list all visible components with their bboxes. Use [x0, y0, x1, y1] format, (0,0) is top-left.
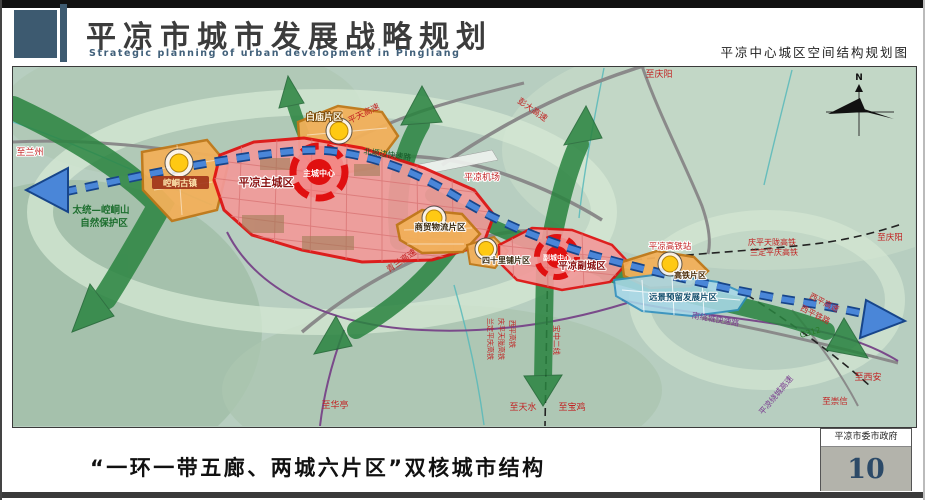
compass-n-label: N [855, 73, 863, 83]
map-frame: N 至兰州 平天高速 彭大高速 至庆阳 北塬边快速路 平凉机场 青兰高速 平凉高… [12, 66, 917, 428]
map-sheet-title: 平凉中心城区空间结构规划图 [720, 42, 909, 61]
label-hsr-district: 高铁片区 [674, 270, 706, 280]
label-to-chongxin: 至崇信 [822, 396, 848, 407]
label-sub-core: 副城中心 [543, 253, 571, 262]
header-accent-bar [60, 4, 67, 62]
page-number: 10 [821, 447, 911, 491]
label-to-lanzhou: 至兰州 [16, 146, 43, 158]
label-qpt-hsr-vertical: 庆平天陇高铁 [497, 318, 506, 360]
label-ldpq-hsr: 兰定平庆高铁 [750, 247, 798, 257]
page-bottom-rule [2, 492, 925, 498]
label-main-core: 主城中心 [303, 168, 335, 178]
header-logo-block [14, 10, 57, 58]
label-sishilipu: 四十里铺片区 [482, 255, 530, 265]
label-baimiao: 白庙片区 [306, 111, 342, 123]
structure-caption: “一环一带五廊、两城六片区”双核城市结构 [90, 452, 546, 482]
label-to-tianshui: 至天水 [509, 401, 536, 413]
label-nature-reserve-line1: 太统—崆峒山 [72, 204, 129, 216]
label-main-city: 平凉主城区 [239, 175, 294, 189]
label-to-huating: 至华亭 [321, 399, 348, 411]
node-kongtong [165, 149, 193, 177]
planning-poster-page: 平凉市城市发展战略规划 Strategic planning of urban … [0, 0, 925, 500]
label-to-baoji: 至宝鸡 [558, 401, 585, 413]
label-to-qingyang-east: 至庆阳 [877, 232, 903, 243]
page-number-box: 平凉市委市政府 10 [820, 428, 912, 491]
page-subtitle-en: Strategic planning of urban development … [89, 48, 461, 59]
label-qpt-hsr: 庆平天陇高铁 [748, 237, 796, 247]
label-hsr-station: 平凉高铁站 [649, 241, 692, 252]
label-kongtong-town-badge: 崆峒古镇 [152, 176, 209, 189]
label-baozhong-line2: 宝中二线 [552, 325, 562, 355]
planning-map: N 至兰州 平天高速 彭大高速 至庆阳 北塬边快速路 平凉机场 青兰高速 平凉高… [13, 67, 915, 426]
label-kongtong-town: 崆峒古镇 [163, 178, 198, 189]
label-reserve: 远景预留发展片区 [649, 292, 718, 303]
label-trade-logistics: 商贸物流片区 [414, 222, 466, 233]
label-airport: 平凉机场 [464, 171, 500, 183]
page-top-edge [2, 0, 925, 8]
agency-label: 平凉市委市政府 [821, 429, 911, 447]
label-ldpq-hsr-vertical: 兰定平庆高铁 [486, 318, 495, 360]
label-nature-reserve-line2: 自然保护区 [80, 217, 128, 229]
label-xiping-hsr-vertical: 西平高铁 [508, 320, 517, 348]
label-to-qingyang-north: 至庆阳 [645, 68, 672, 80]
label-to-xian: 至西安 [854, 371, 881, 383]
